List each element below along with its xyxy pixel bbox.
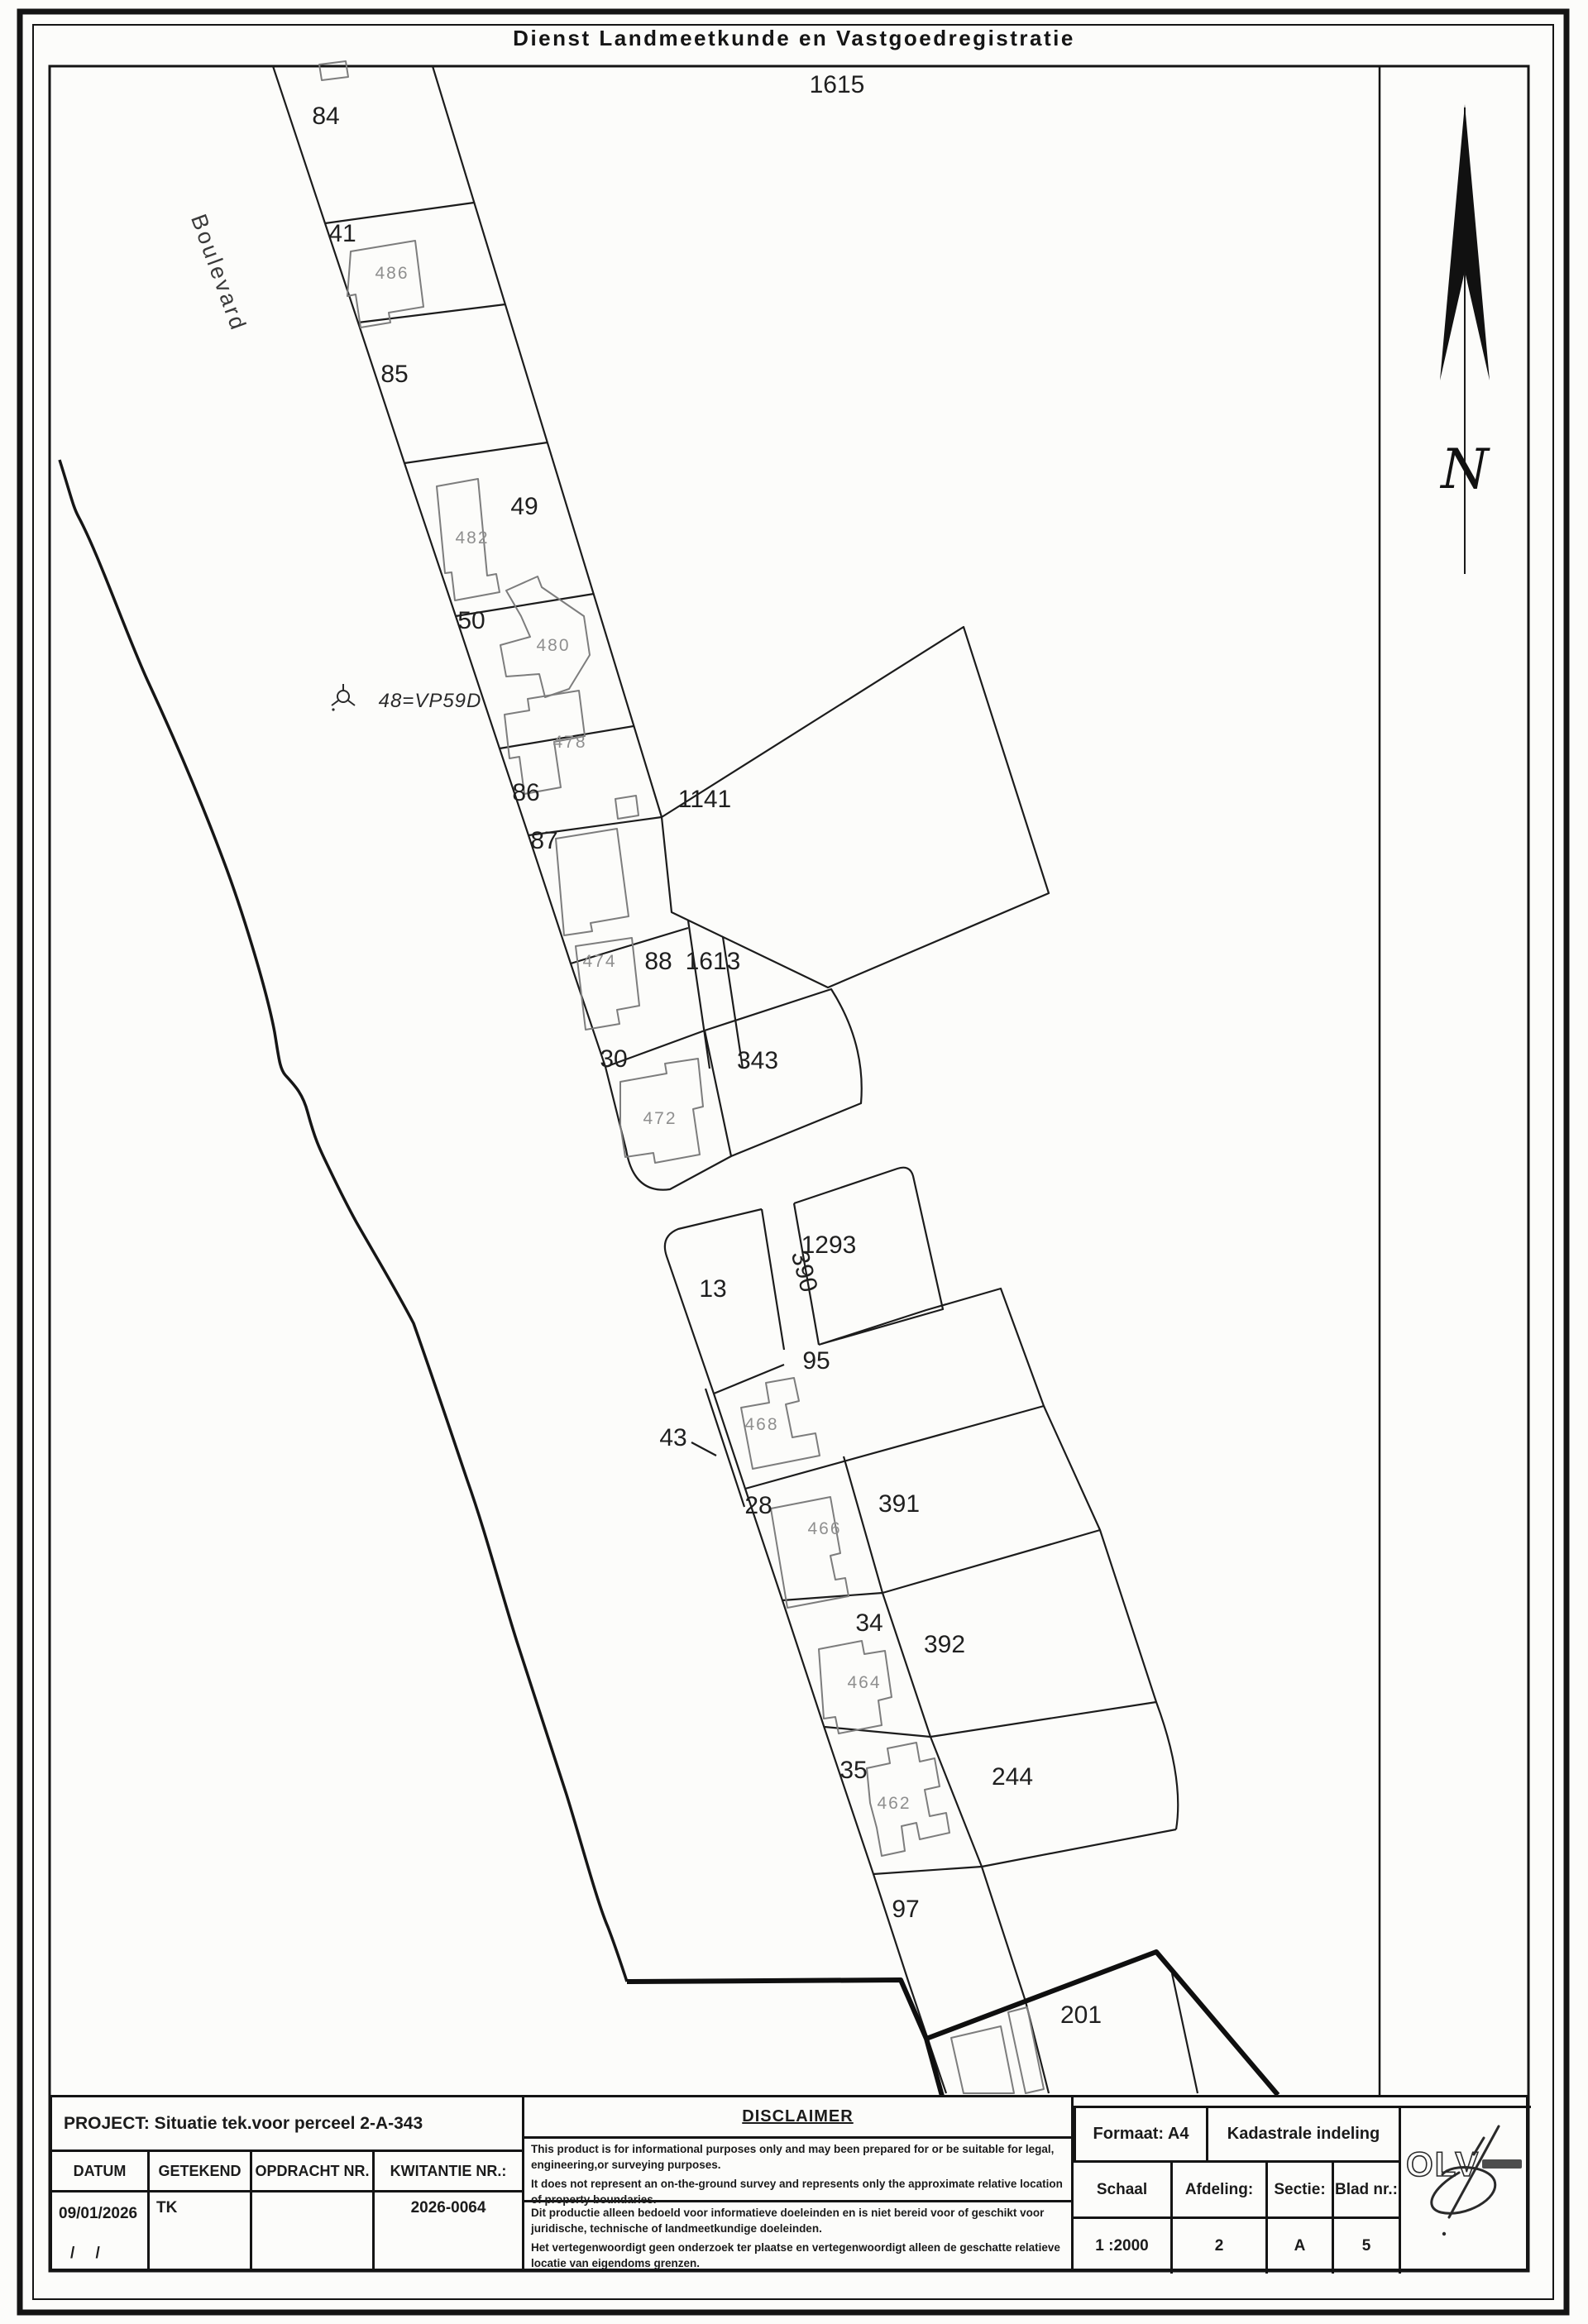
parcel-label-201: 201 [1060,2001,1102,2029]
page-border [20,12,1566,2312]
building-label-472: 472 [643,1109,677,1128]
datum-value-2: / / [59,2245,108,2263]
disclaimer-dutch: Dit productie alleen bedoeld voor inform… [524,2202,1071,2272]
parcel-label-49: 49 [510,493,538,520]
sectie-value: A [1268,2219,1334,2274]
value-kwitantie: 2026-0064 [375,2192,522,2269]
parcel-label-85: 85 [380,361,408,388]
parcel-label-86: 86 [512,779,539,806]
parcel-label-391: 391 [878,1490,920,1518]
page-title: Dienst Landmeetkunde en Vastgoedregistra… [37,26,1551,51]
disclaimer-en-1: This product is for informational purpos… [531,2142,1064,2173]
column-header-datum: DATUM [52,2152,150,2190]
disclaimer-box: DISCLAIMER This product is for informati… [524,2097,1074,2269]
building-label-480: 480 [536,636,570,655]
parcel-label-392: 392 [924,1631,965,1658]
value-opdracht [252,2192,375,2269]
building-label-466: 466 [807,1519,841,1538]
bold-road-line [627,1952,1278,2099]
disclaimer-title: DISCLAIMER [524,2097,1071,2139]
parcel-label-41: 41 [328,220,356,247]
parcel-43-leader [691,1442,716,1456]
kadastrale-label: Kadastrale indeling [1208,2108,1399,2160]
building-466 [771,1497,849,1608]
parcel-label-84: 84 [312,103,339,130]
parcel-label-1615: 1615 [810,71,865,98]
map-frame [50,66,1528,2271]
cadastral-map: N Boulevard 48=VP59D 1615844185495086114… [0,0,1588,2324]
building-label-478: 478 [552,733,586,752]
column-header-getekend: GETEKEND [150,2152,252,2190]
logo-text: OLV [1406,2145,1480,2183]
value-getekend: TK [150,2192,252,2269]
parcel-boundaries [273,66,1198,2093]
building-201a [951,2026,1014,2093]
format-section: Formaat: A4 Kadastrale indeling Schaal A… [1074,2097,1531,2269]
schaal-label: Schaal [1074,2163,1173,2216]
parcel-label-1613: 1613 [686,948,741,975]
disclaimer-nl-2: Het vertegenwoordigt geen onderzoek ter … [531,2240,1064,2272]
formaat-label: Formaat: A4 [1076,2108,1208,2160]
disclaimer-nl-1: Dit productie alleen bedoeld voor inform… [531,2206,1064,2237]
building-486 [347,241,423,328]
building-label-482: 482 [455,528,489,548]
north-label: N [1439,438,1490,501]
cadastral-map-sheet: N Boulevard 48=VP59D 1615844185495086114… [0,0,1588,2324]
title-block: PROJECT: Situatie tek.voor perceel 2-A-3… [50,2095,1528,2271]
parcel-label-13: 13 [699,1275,726,1303]
parcel-label-87: 87 [530,827,557,854]
organization-logo: OLV [1399,2106,1531,2274]
parcel-label-34: 34 [855,1609,882,1637]
benchmark-label: 48=VP59D [379,690,482,712]
schaal-value: 1 :2000 [1074,2219,1173,2274]
parcel-label-43: 43 [659,1424,686,1451]
building-annex [615,796,639,819]
datum-value: 09/01/2026 [59,2205,137,2223]
building-outlines [319,61,1044,2093]
blad-value: 5 [1334,2219,1399,2274]
building-label-486: 486 [375,264,409,283]
building-top-edge [319,61,348,80]
building-label-462: 462 [877,1794,911,1813]
building-label-474: 474 [582,952,616,971]
sectie-label: Sectie: [1268,2163,1334,2216]
building-label-468: 468 [744,1415,778,1434]
parcel-label-244: 244 [992,1763,1033,1791]
blad-label: Blad nr.: [1334,2163,1399,2216]
column-header-kwitantie: KWITANTIE NR.: [375,2152,522,2190]
benchmark-icon [332,684,355,711]
parcel-label-95: 95 [802,1347,830,1375]
column-header-opdracht: OPDRACHT NR. [252,2152,375,2190]
parcel-label-343: 343 [737,1047,778,1074]
afdeling-value: 2 [1173,2219,1268,2274]
street-label: Boulevard [186,211,251,335]
parcel-label-28: 28 [744,1492,772,1519]
disclaimer-english: This product is for informational purpos… [524,2139,1071,2202]
parcel-label-97: 97 [892,1896,919,1923]
title-block-left: PROJECT: Situatie tek.voor perceel 2-A-3… [52,2097,524,2269]
logo-smudge [1482,2159,1522,2169]
north-arrow-icon: N [1439,104,1490,574]
parcel-label-35: 35 [839,1757,867,1784]
parcel-label-88: 88 [644,948,672,975]
building-label-464: 464 [847,1673,881,1692]
value-datum: 09/01/2026 / / [52,2192,150,2269]
parcel-label-30: 30 [600,1045,627,1073]
building-87 [556,829,629,935]
parcel-label-1293: 1293 [801,1231,857,1259]
project-label: PROJECT: Situatie tek.voor perceel 2-A-3… [52,2097,522,2152]
afdeling-label: Afdeling: [1173,2163,1268,2216]
parcel-label-1141: 1141 [678,786,732,813]
parcel-label-50: 50 [457,607,485,634]
